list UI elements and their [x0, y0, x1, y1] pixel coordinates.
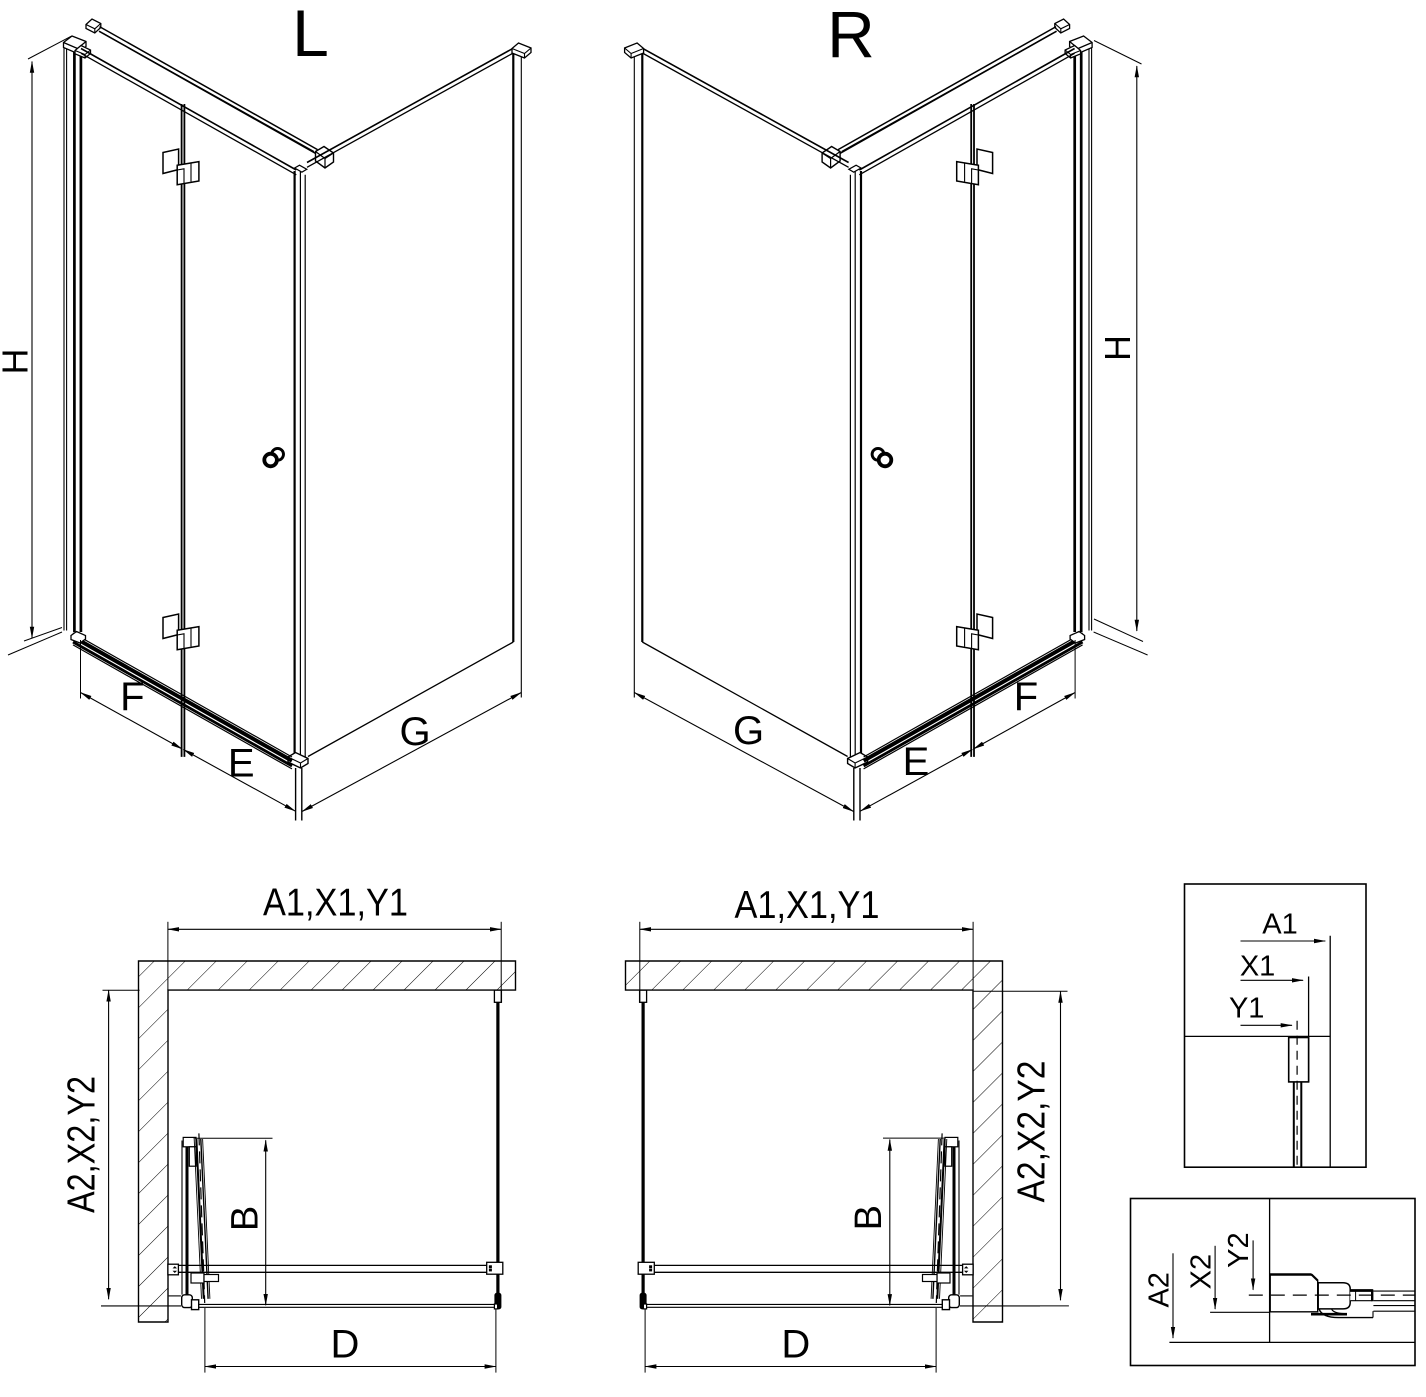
svg-text:A2,X2,Y2: A2,X2,Y2 [61, 1076, 104, 1213]
svg-text:X2: X2 [1186, 1254, 1218, 1289]
svg-text:A1: A1 [1262, 908, 1297, 940]
svg-text:D: D [781, 1322, 810, 1366]
svg-text:F: F [120, 675, 144, 719]
svg-text:G: G [733, 709, 764, 753]
svg-text:L: L [292, 0, 329, 70]
svg-text:Y2: Y2 [1223, 1232, 1255, 1267]
svg-text:A1,X1,Y1: A1,X1,Y1 [263, 882, 408, 925]
svg-text:B: B [848, 1205, 890, 1230]
svg-text:D: D [331, 1322, 360, 1366]
svg-text:E: E [903, 740, 930, 784]
svg-text:R: R [827, 0, 875, 72]
svg-text:A2: A2 [1144, 1272, 1176, 1307]
svg-text:A1,X1,Y1: A1,X1,Y1 [735, 884, 880, 927]
svg-text:Y1: Y1 [1229, 993, 1264, 1025]
svg-text:E: E [228, 742, 255, 786]
svg-text:B: B [225, 1206, 267, 1231]
svg-text:H: H [0, 349, 36, 375]
svg-text:H: H [1097, 335, 1138, 361]
svg-text:X1: X1 [1240, 951, 1275, 983]
svg-text:A2,X2,Y2: A2,X2,Y2 [1010, 1061, 1053, 1203]
svg-text:F: F [1014, 675, 1038, 719]
svg-text:G: G [399, 710, 430, 754]
